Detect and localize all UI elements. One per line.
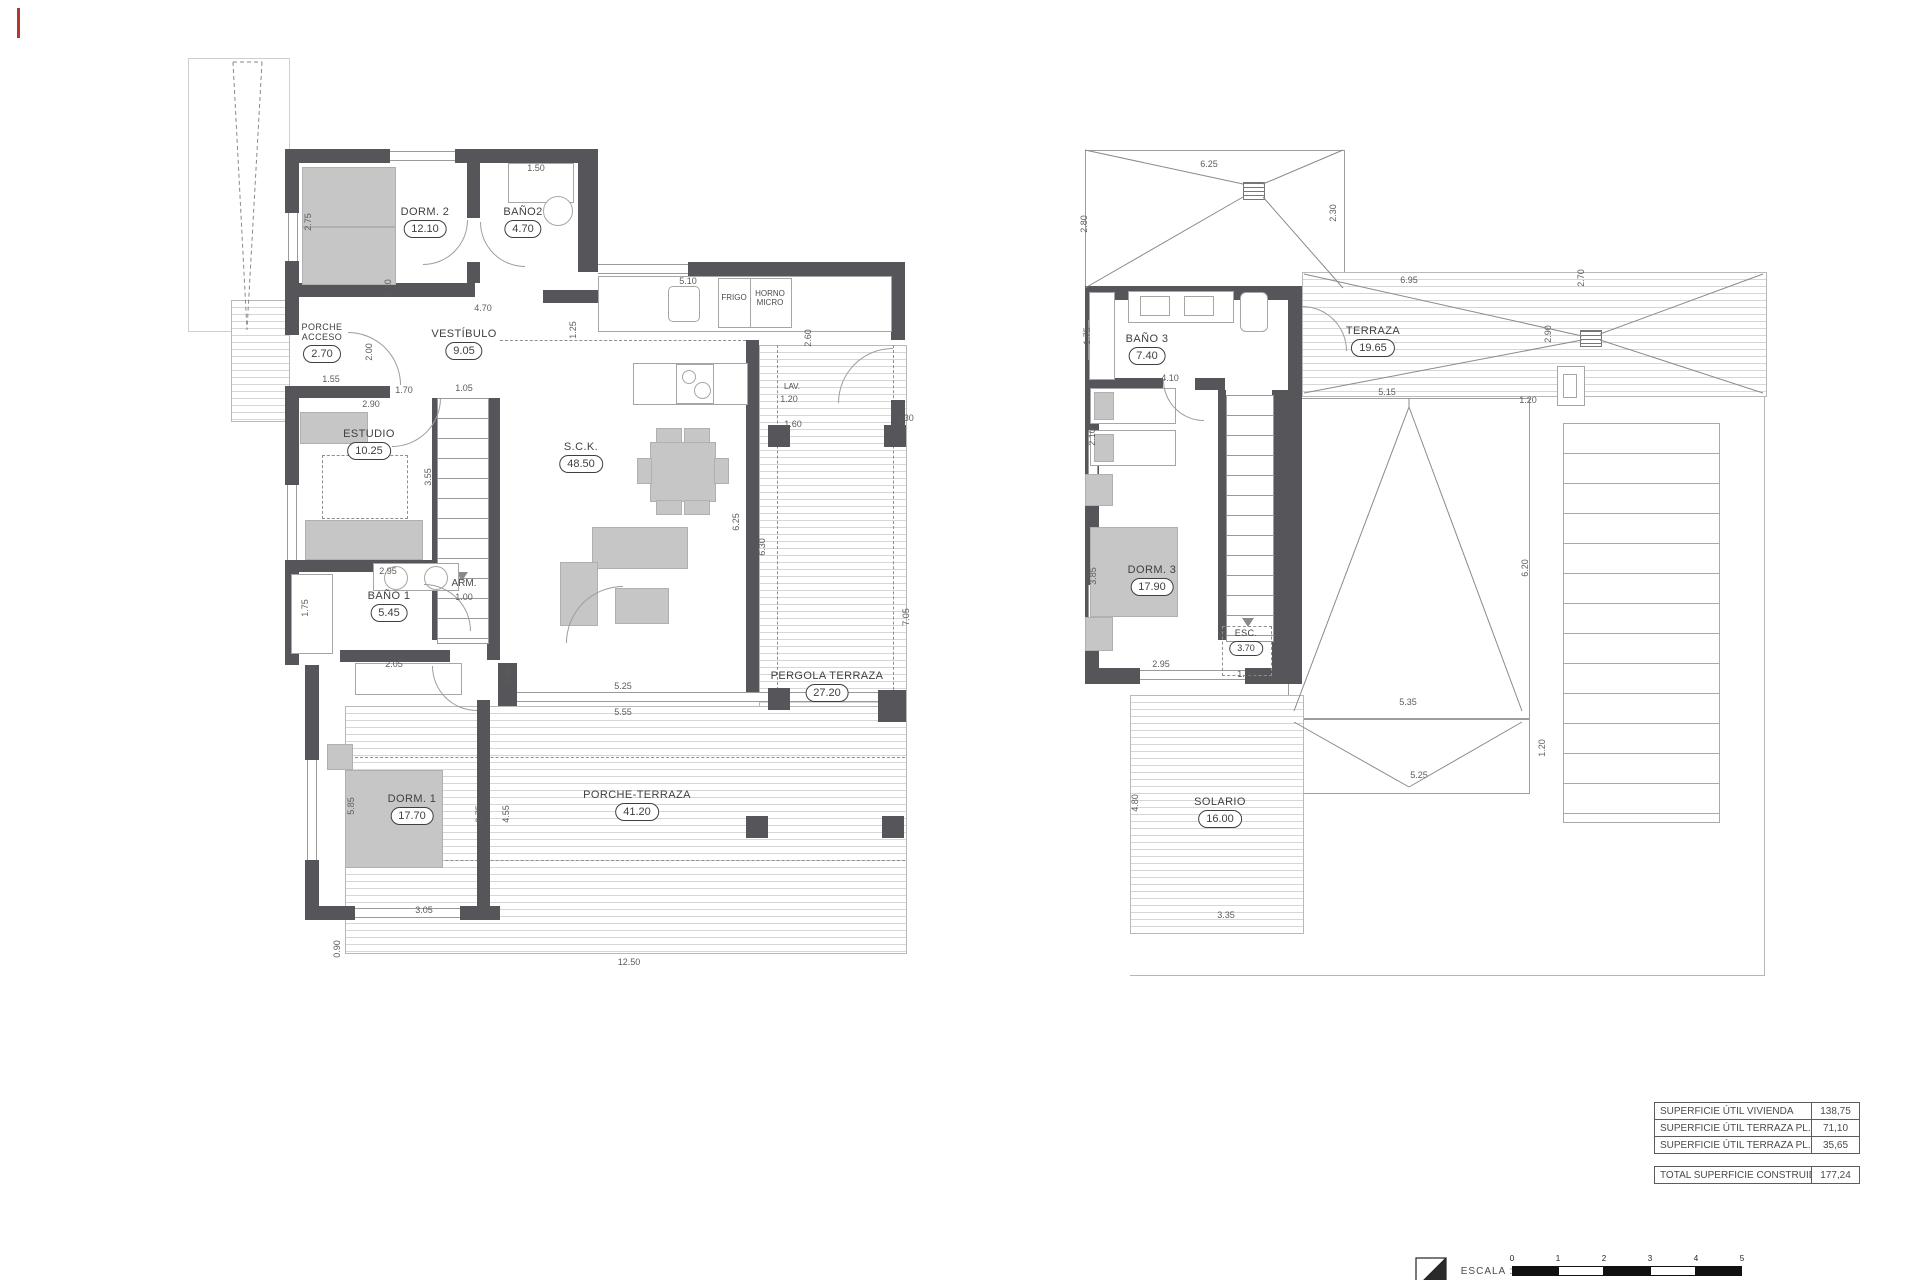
room-label-porche-terraza: PORCHE-TERRAZA41.20 (583, 789, 691, 821)
room-area: 41.20 (615, 803, 659, 821)
room-name: DORM. 3 (1128, 564, 1177, 576)
room-area: 5.45 (370, 604, 407, 622)
wall-segment (1085, 668, 1140, 684)
room-label-sck: S.C.K.48.50 (559, 441, 603, 473)
pergola-post (884, 425, 906, 447)
chair (714, 458, 729, 484)
wall-segment (285, 386, 390, 398)
fridge-label: FRIGO (721, 294, 746, 303)
dimension-label: 3.35 (1217, 910, 1235, 920)
wall-segment (543, 290, 598, 303)
room-area: 16.00 (1198, 810, 1242, 828)
chair (684, 500, 710, 515)
scale-segment (1512, 1266, 1558, 1276)
roof-outline (1288, 398, 1530, 720)
dimension-label: 5.25 (1410, 770, 1428, 780)
room-label-vestibulo: VESTÍBULO9.05 (431, 328, 496, 360)
wall-segment (285, 420, 299, 485)
room-name: DORM. 2 (401, 206, 450, 218)
wall-segment (688, 262, 905, 276)
dimension-label: 5.15 (1378, 387, 1396, 397)
scale-tick: 3 (1648, 1254, 1652, 1263)
room-area: 12.10 (403, 220, 447, 238)
nightstand (327, 744, 353, 770)
toilet (1240, 292, 1268, 332)
cooktop-burner (682, 370, 696, 384)
dimension-label: 1.00 (455, 592, 473, 602)
chair (637, 458, 652, 484)
room-name: VESTÍBULO (431, 328, 496, 340)
dimension-label: 4.10 (1161, 373, 1179, 383)
room-label-estudio: ESTUDIO10.25 (343, 428, 395, 460)
dimension-label: 1.20 (780, 394, 798, 404)
wall-segment (1272, 390, 1302, 668)
wall-segment (578, 149, 598, 272)
room-label-bano-2: BAÑO24.70 (503, 206, 542, 238)
dimension-label: 2.90 (362, 399, 380, 409)
wall-segment (305, 906, 355, 920)
bathtub (1089, 292, 1115, 380)
room-area: 7.40 (1128, 347, 1165, 365)
room-area: 17.90 (1130, 578, 1174, 596)
dimension-label: 7.05 (901, 608, 911, 626)
wall-segment (467, 163, 480, 218)
room-area: 4.70 (504, 220, 541, 238)
room-name: TERRAZA (1346, 325, 1400, 337)
pergola-dashed-line (893, 345, 894, 705)
wall-segment (455, 149, 592, 163)
window (287, 485, 297, 560)
chair (656, 500, 682, 515)
porch-post (746, 816, 768, 838)
room-area: 9.05 (445, 342, 482, 360)
room-name: PERGOLA TERRAZA (771, 670, 884, 682)
dimension-label: 0.55 (502, 667, 512, 685)
door-arc (432, 666, 477, 711)
dimension-label: 5.85 (346, 797, 356, 815)
table-row-label: SUPERFICIE ÚTIL TERRAZA PL. ALTA (1655, 1136, 1811, 1153)
dimension-label: 6.30 (757, 538, 767, 556)
dimension-label: 2.80 (1079, 215, 1089, 233)
dimension-label: 2.95 (379, 566, 397, 576)
room-name: BAÑO2 (503, 206, 542, 218)
bathtub (291, 574, 333, 654)
table-total-value: 177,24 (1811, 1167, 1859, 1183)
sofa (305, 520, 423, 560)
dimension-label: 2.00 (364, 343, 374, 361)
table-total-label: TOTAL SUPERFICIE CONSTRUIDA (1655, 1167, 1811, 1183)
dimension-label: 1.30 (896, 413, 914, 423)
chair (684, 428, 710, 443)
dimension-label: 12.50 (618, 957, 641, 967)
door-arc (348, 332, 401, 385)
room-label-dorm-1: DORM. 117.70 (388, 793, 437, 825)
room-name: S.C.K. (559, 441, 603, 453)
dimension-label: 6.20 (1520, 559, 1530, 577)
wall-segment (305, 665, 319, 760)
roof-outline (1288, 718, 1530, 794)
dimension-label: 2.30 (1328, 204, 1338, 222)
staircase (1226, 395, 1274, 642)
window (307, 760, 317, 860)
room-name: PORCHE ACCESO (289, 322, 355, 343)
room-name: SOLARIO (1194, 796, 1246, 808)
dining-table (650, 442, 716, 502)
dimension-label: 2.70 (1576, 269, 1586, 287)
scale-tick: 4 (1694, 1254, 1698, 1263)
dimension-label: 2.90 (1543, 325, 1553, 343)
room-area: 17.70 (390, 807, 434, 825)
dimension-label: 6.25 (731, 513, 741, 531)
pergola-dashed-line (777, 345, 778, 705)
roof-ridge-hatch (1243, 182, 1265, 200)
chimney-flue (1563, 374, 1577, 398)
pergola-slats (1563, 423, 1720, 823)
scale-segment (1650, 1266, 1696, 1276)
nightstand (1085, 474, 1113, 506)
dimension-label: 4.80 (1130, 794, 1140, 812)
surface-summary-table: SUPERFICIE ÚTIL VIVIENDA 138,75 SUPERFIC… (1654, 1102, 1860, 1154)
sofa (592, 527, 688, 569)
chair (656, 428, 682, 443)
surface-total-table: TOTAL SUPERFICIE CONSTRUIDA 177,24 (1654, 1166, 1860, 1184)
floorplan-sheet: FRIGO HORNO MICRO LAV. (0, 0, 1920, 1280)
deck-ridge-hatch (1580, 330, 1602, 347)
scale-tick: 1 (1556, 1254, 1560, 1263)
bathroom-sink (1184, 296, 1214, 316)
dimension-label: 1.50 (527, 163, 545, 173)
scale-segment (1696, 1266, 1742, 1276)
dimension-label: 3.05 (415, 905, 433, 915)
room-label-bano-1: BAÑO 15.45 (368, 590, 411, 622)
room-area: 48.50 (559, 455, 603, 473)
fridge (718, 278, 752, 328)
porch-steps-deck (231, 300, 290, 422)
laundry-label: LAV. (784, 382, 800, 391)
table-row-label: SUPERFICIE ÚTIL TERRAZA PL. BAJA (1655, 1119, 1811, 1136)
room-name: BAÑO 3 (1126, 333, 1169, 345)
wall-segment (285, 163, 299, 213)
room-label-porche-acceso: PORCHE ACCESO2.70 (289, 322, 355, 363)
dimension-label: 5.55 (614, 707, 632, 717)
dimension-label: 5.25 (614, 681, 632, 691)
driveway-frame (188, 58, 290, 332)
dimension-label: 4.70 (474, 303, 492, 313)
dimension-label: 1.05 (1237, 669, 1255, 679)
roof-outline (1085, 150, 1345, 290)
dimension-label: 0.20 (383, 279, 393, 297)
room-name: ESTUDIO (343, 428, 395, 440)
room-label-pergola-terraza: PERGOLA TERRAZA27.20 (771, 670, 884, 702)
bed (302, 227, 396, 285)
dimension-label: 3.85 (1088, 567, 1098, 585)
porche-dashed-line (345, 757, 905, 758)
wardrobe-label: ARM. (452, 578, 477, 589)
room-label-dorm-3: DORM. 317.90 (1128, 564, 1177, 596)
wall-segment (891, 276, 905, 340)
table-row-value: 138,75 (1811, 1103, 1859, 1119)
nightstand (1085, 617, 1113, 651)
dimension-label: 1.75 (1082, 327, 1092, 345)
room-label-solario: SOLARIO16.00 (1194, 796, 1246, 828)
dimension-label: 6.75 (474, 805, 484, 823)
window (598, 264, 688, 274)
room-label-bano-3: BAÑO 37.40 (1126, 333, 1169, 365)
north-compass-icon (1412, 1254, 1456, 1280)
dimension-label: 1.70 (395, 385, 413, 395)
dimension-label: 1.20 (1519, 395, 1537, 405)
dimension-label: 0.90 (332, 940, 342, 958)
window (288, 213, 298, 261)
table-row-value: 35,65 (1811, 1136, 1859, 1153)
room-name: BAÑO 1 (368, 590, 411, 602)
room-area: 10.25 (347, 442, 391, 460)
dimension-label: 5.10 (679, 276, 697, 286)
wall-segment (1218, 390, 1226, 640)
coffee-table (615, 588, 669, 624)
wall-segment (285, 149, 390, 163)
scale-segment (1604, 1266, 1650, 1276)
dimension-label: 5.35 (1399, 697, 1417, 707)
pillow (1094, 392, 1114, 420)
room-area: 2.70 (303, 345, 340, 363)
scale-segment (1558, 1266, 1604, 1276)
kitchen-sink (668, 286, 700, 322)
room-name: PORCHE-TERRAZA (583, 789, 691, 801)
room-label-dorm-2: DORM. 212.10 (401, 206, 450, 238)
dimension-label: 6.95 (1400, 275, 1418, 285)
pillow (1094, 434, 1114, 462)
wall-segment (1288, 300, 1302, 390)
dimension-label: 1.60 (784, 419, 802, 429)
room-label-esc: ESC.3.70 (1229, 628, 1263, 656)
scale-label: ESCALA : (1461, 1266, 1513, 1277)
scale-tick: 0 (1510, 1254, 1514, 1263)
bathroom-sink (1140, 296, 1170, 316)
wall-segment (467, 262, 480, 283)
bed (302, 167, 396, 227)
room-label-terraza: TERRAZA19.65 (1346, 325, 1400, 357)
rug (322, 455, 408, 519)
table-row-label: SUPERFICIE ÚTIL VIVIENDA (1655, 1103, 1811, 1119)
window (355, 908, 460, 918)
sheet-red-mark (17, 8, 20, 38)
oven-label: HORNO MICRO (755, 290, 785, 308)
dimension-label: 2.10 (1087, 428, 1097, 446)
dimension-label: 1.55 (322, 374, 340, 384)
room-name: ESC. (1229, 628, 1263, 638)
dimension-label: 6.25 (1200, 159, 1218, 169)
dimension-label: 1.20 (1537, 739, 1547, 757)
dimension-label: 1.75 (300, 599, 310, 617)
table-row-value: 71,10 (1811, 1119, 1859, 1136)
dimension-label: 3.55 (423, 468, 433, 486)
bathroom-sink (543, 196, 573, 226)
room-name: DORM. 1 (388, 793, 437, 805)
kitchen-living-dashed-line (500, 340, 746, 341)
room-area: 27.20 (805, 684, 849, 702)
dimension-label: 1.05 (455, 383, 473, 393)
window (390, 151, 456, 161)
scale-tick: 2 (1602, 1254, 1606, 1263)
dimension-label: 2.60 (803, 329, 813, 347)
wall-segment (285, 283, 475, 297)
cooktop-burner (694, 382, 711, 399)
dimension-label: 4.55 (501, 805, 511, 823)
dimension-label: 2.95 (1152, 659, 1170, 669)
scale-tick: 5 (1740, 1254, 1744, 1263)
dimension-label: 2.05 (385, 659, 403, 669)
boundary-line (1130, 975, 1765, 976)
porch-post (882, 816, 904, 838)
dimension-label: 1.25 (568, 321, 578, 339)
dimension-label: 2.75 (303, 213, 313, 231)
room-area: 3.70 (1229, 641, 1263, 656)
room-area: 19.65 (1351, 339, 1395, 357)
